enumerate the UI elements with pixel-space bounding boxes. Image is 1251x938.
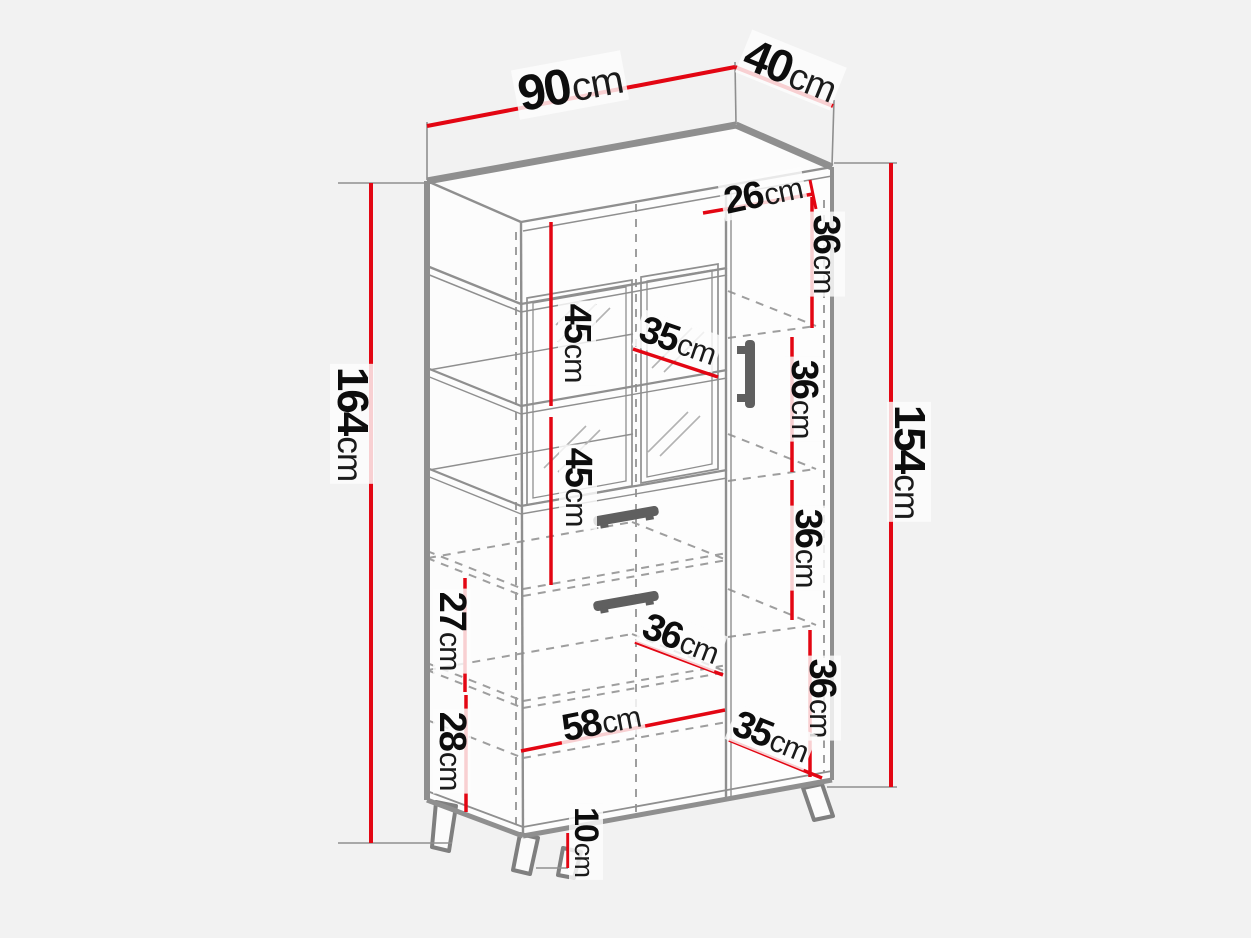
dim-value: 36 [803, 659, 841, 697]
cabinet-dimension-diagram: 90 cm 40 cm 164 cm 154 cm 26 cm 36 cm 36… [0, 0, 1251, 938]
dim-value: 58 [559, 704, 604, 749]
dim-label-right-comp-4: 36 cm [803, 656, 841, 741]
dim-unit: cm [571, 843, 598, 877]
dim-value: 28 [433, 712, 471, 750]
dim-unit: cm [599, 702, 643, 739]
dim-label-total-height: 164 cm [330, 364, 374, 484]
dim-label-right-comp-1: 36 cm [807, 212, 845, 297]
dim-value: 45 [558, 304, 596, 342]
dim-label-glass-lower: 45 cm [559, 445, 597, 530]
leg-front-right [803, 784, 833, 820]
dim-label-glass-upper: 45 cm [558, 301, 596, 386]
dim-unit: cm [761, 173, 805, 211]
dim-unit: cm [889, 474, 924, 519]
dim-unit: cm [435, 632, 465, 671]
dim-value: 45 [559, 448, 597, 486]
dim-value: 90 [514, 61, 574, 120]
dim-value: 26 [721, 176, 766, 221]
dim-label-leg-height: 10 cm [569, 804, 603, 880]
dim-value: 154 [887, 405, 931, 472]
dim-value: 36 [789, 509, 827, 547]
dim-unit: cm [435, 752, 465, 791]
dim-label-carcass-height: 154 cm [887, 402, 931, 522]
dim-value: 10 [569, 807, 603, 841]
dim-value: 27 [433, 592, 471, 630]
dim-label-right-comp-3: 36 cm [789, 506, 827, 591]
dim-unit: cm [791, 549, 821, 588]
dim-value: 164 [330, 367, 374, 434]
dim-label-right-comp-2: 36 cm [785, 357, 823, 442]
dim-unit: cm [568, 60, 626, 109]
dim-label-shelf-gap-28: 28 cm [433, 709, 471, 794]
dim-value: 36 [807, 215, 845, 253]
dim-value: 36 [785, 360, 823, 398]
dim-label-shelf-gap-27: 27 cm [433, 589, 471, 674]
dim-unit: cm [809, 255, 839, 294]
dim-unit: cm [332, 436, 367, 481]
dim-unit: cm [561, 488, 591, 527]
dim-unit: cm [787, 400, 817, 439]
leg-front-left [513, 834, 538, 874]
dim-unit: cm [560, 344, 590, 383]
cabinet-line-drawing [0, 0, 1251, 938]
